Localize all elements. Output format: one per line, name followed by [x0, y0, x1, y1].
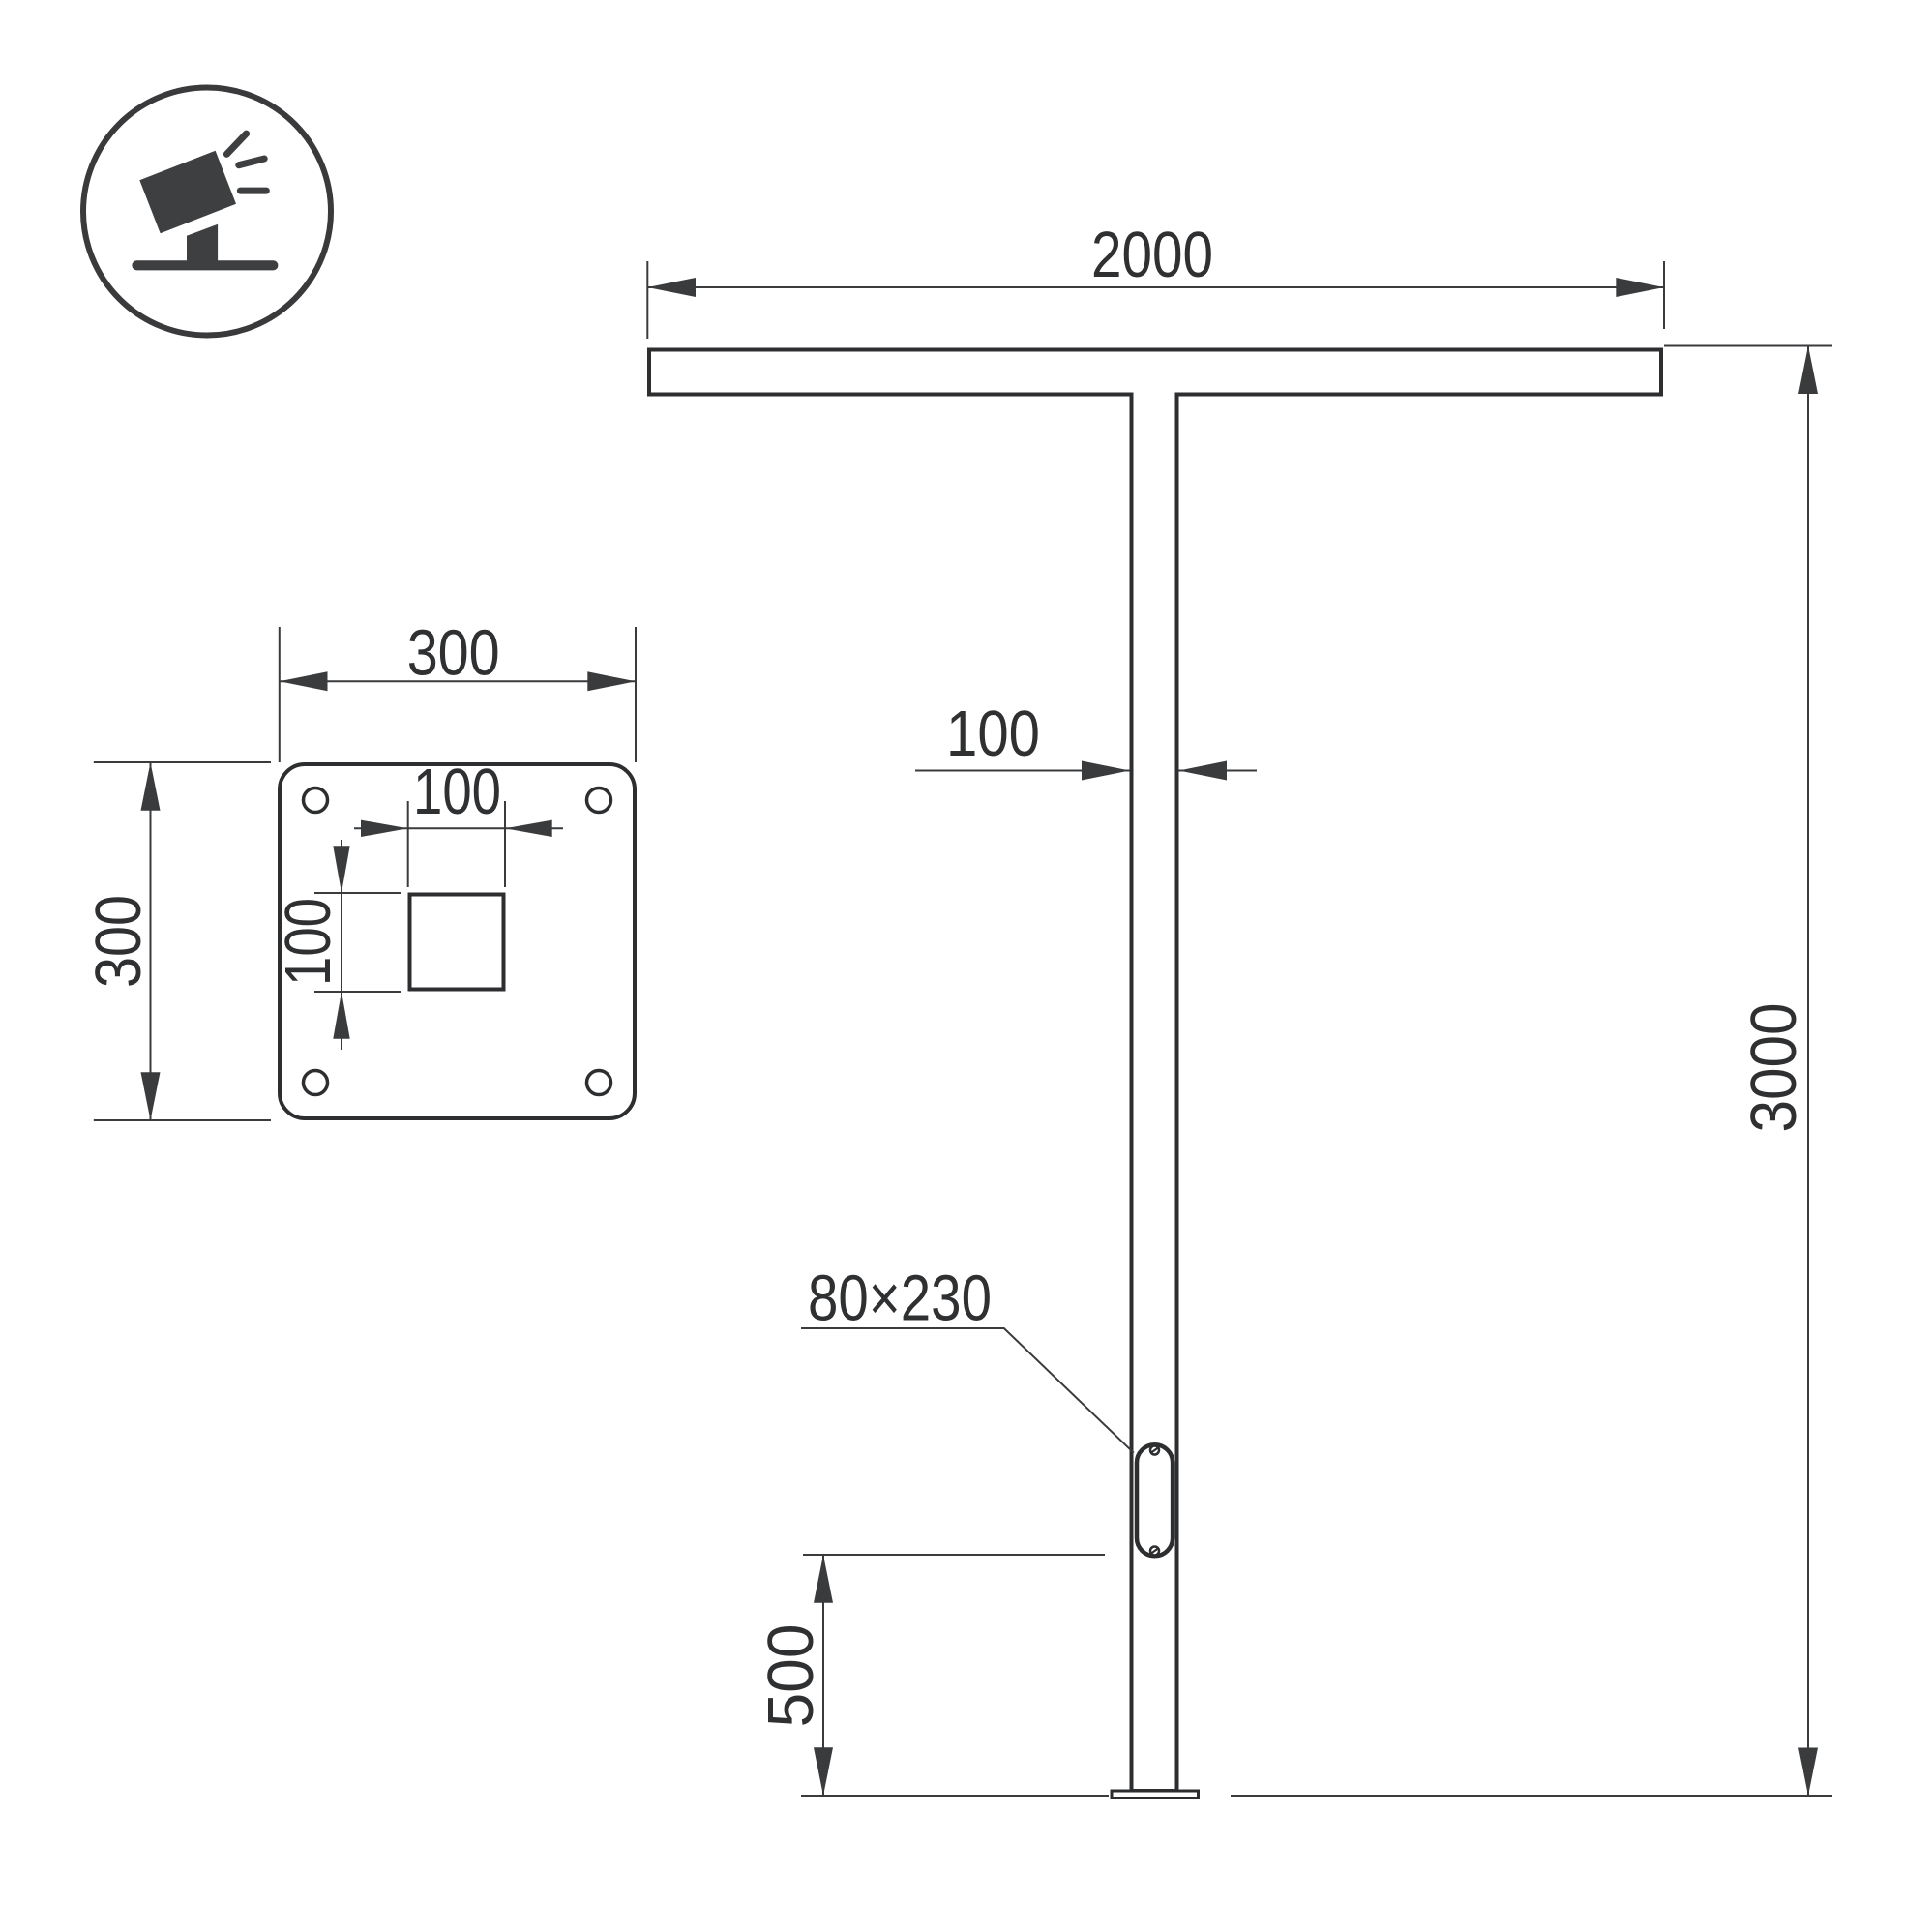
svg-text:100: 100: [413, 756, 501, 828]
svg-text:3000: 3000: [1738, 1003, 1810, 1133]
svg-text:300: 300: [407, 617, 500, 690]
svg-text:100: 100: [272, 898, 344, 986]
svg-text:2000: 2000: [1091, 219, 1213, 291]
svg-text:80×230: 80×230: [808, 1263, 992, 1335]
svg-text:300: 300: [82, 895, 155, 988]
svg-text:500: 500: [755, 1624, 827, 1728]
svg-text:100: 100: [946, 698, 1040, 770]
